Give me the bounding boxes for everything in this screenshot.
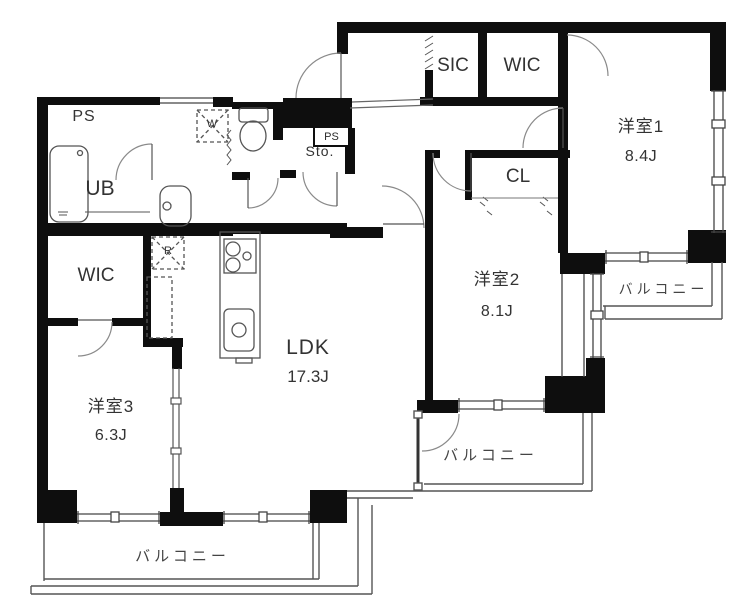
floorplan: PS UB WIC W R Sto. PS SIC WIC CL 洋室1 8.4… <box>0 0 750 606</box>
label-bath: UB <box>72 177 128 200</box>
label-closet: CL <box>490 167 546 188</box>
label-bedroom3-name: 洋室3 <box>56 398 166 417</box>
label-refrigerator: R <box>158 245 178 257</box>
label-bedroom2-size: 8.1J <box>442 303 552 321</box>
label-bedroom1-size: 8.4J <box>586 148 696 166</box>
entry-step-lines <box>350 99 433 108</box>
label-wic-hall: WIC <box>486 56 558 77</box>
label-washer: W <box>202 118 222 130</box>
toilet-bowl <box>240 121 266 151</box>
label-ldk-size: 17.3J <box>258 368 358 387</box>
label-bedroom2-name: 洋室2 <box>442 271 552 290</box>
label-balcony-center: バルコニー <box>418 448 563 465</box>
toilet-tank <box>239 108 268 122</box>
label-wic-main: WIC <box>60 266 132 287</box>
pipe-space-small-box: PS <box>313 126 350 147</box>
label-balcony-south: バルコニー <box>110 549 255 566</box>
label-balcony-east: バルコニー <box>591 282 736 297</box>
label-sic: SIC <box>426 56 480 77</box>
label-pipe-space-small: PS <box>324 131 339 143</box>
cabinet-box <box>147 277 172 338</box>
label-ldk-name: LDK <box>258 336 358 359</box>
fixtures <box>50 108 268 363</box>
label-bedroom3-size: 6.3J <box>56 427 166 445</box>
sliding-partition <box>171 368 181 488</box>
label-bedroom1-name: 洋室1 <box>586 118 696 137</box>
washbasin <box>160 186 191 226</box>
label-pipe-space: PS <box>60 108 108 126</box>
plan-lines <box>0 0 750 606</box>
kitchen-sink <box>224 309 254 351</box>
